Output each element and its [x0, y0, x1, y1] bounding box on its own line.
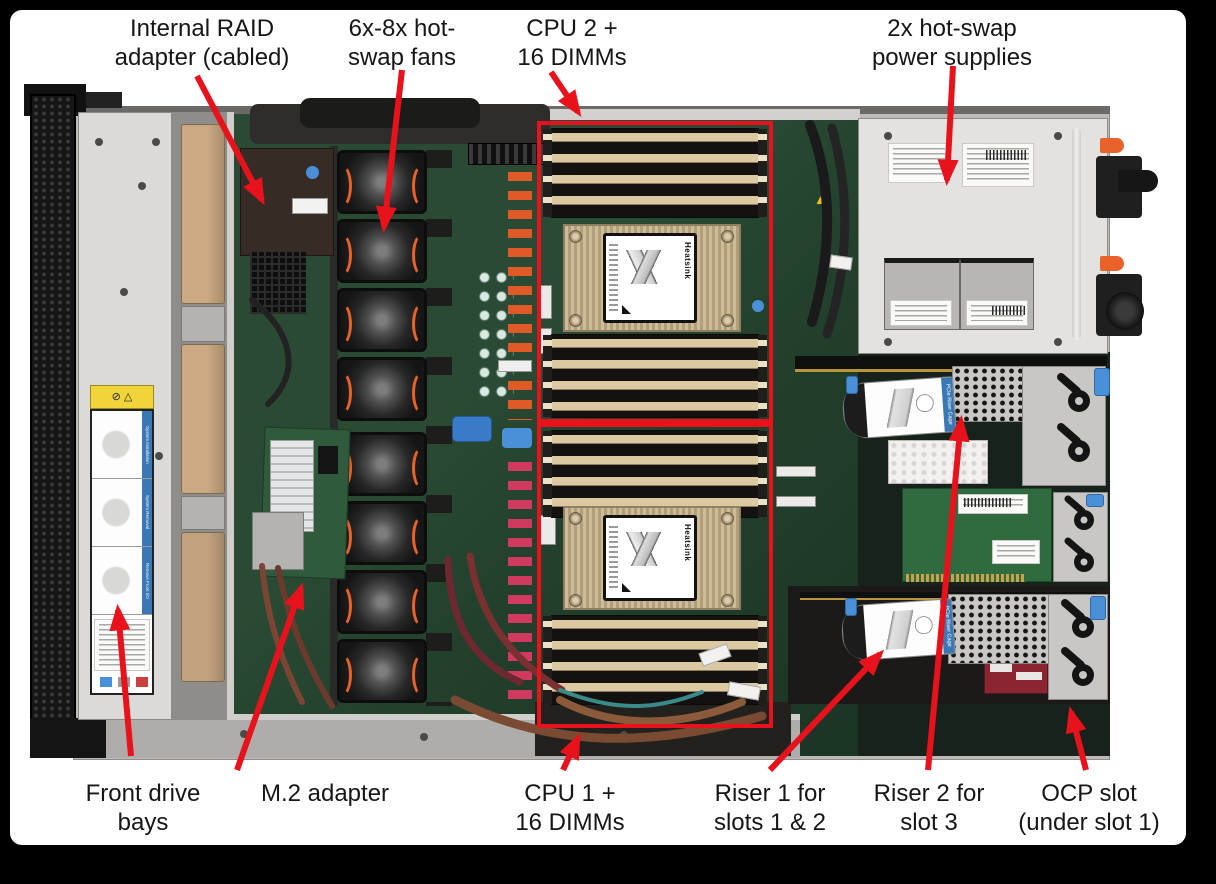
panel-screw: [138, 182, 146, 190]
service-card-panel: System Installation: [92, 411, 152, 479]
board-label-white: [498, 360, 532, 372]
riser2-instruction-card: PCIe Riser Cage: [841, 376, 957, 440]
rack-ear-bottom: [30, 718, 106, 758]
service-card-chip: [118, 677, 130, 687]
callout-front-drive-bays: Front drive bays: [86, 779, 201, 837]
blue-latch-small: [502, 428, 532, 448]
callout-line: Riser 2 for: [874, 779, 985, 808]
bracket-hook-cutouts: [1062, 495, 1102, 579]
riser1-blue-tab-left: [845, 598, 857, 616]
fan-module-2: [337, 219, 427, 283]
panel-screw: [152, 138, 160, 146]
riser-card-diagram: [870, 608, 940, 651]
cpu1-highlight-box: [537, 423, 773, 728]
psu-bay-screw: [1054, 132, 1062, 140]
psu-label-barcode: [992, 306, 1026, 315]
callout-line: slots 1 & 2: [714, 808, 826, 837]
callout-line: 2x hot-swap: [872, 14, 1032, 43]
riser1-blue-tab-right: [1090, 596, 1106, 620]
callout-line: swap fans: [348, 43, 456, 72]
callout-line: bays: [86, 808, 201, 837]
callout-cpu1: CPU 1 + 16 DIMMs: [515, 779, 624, 837]
fan-module-1: [337, 150, 427, 214]
front-bezel: [30, 94, 76, 732]
rack-latch-top: [86, 92, 122, 108]
psu2-release-tab: [1100, 256, 1124, 271]
fan-module-4: [337, 357, 427, 421]
pcie-card-barcode: [964, 498, 1012, 507]
warning-triangle-icon: △: [124, 391, 132, 403]
chassis-top-lip: [538, 109, 860, 120]
callout-psu: 2x hot-swap power supplies: [872, 14, 1032, 72]
cable-bundle-top-dark: [300, 98, 480, 128]
service-card-panel: Remove Front I/O: [92, 547, 152, 615]
riser-card-strip-label: PCIe Riser Cage: [940, 599, 955, 654]
drive-top-edge: [181, 532, 225, 682]
drive-top-edge: [181, 344, 225, 494]
board-connector-white: [776, 466, 816, 477]
callout-line: slot 3: [874, 808, 985, 837]
hook-cutout: [1061, 377, 1077, 391]
m2-chip: [318, 446, 338, 474]
service-strip-label: System Removal: [142, 479, 152, 546]
service-card-panel: System Removal: [92, 479, 152, 547]
callout-cpu2: CPU 2 + 16 DIMMs: [517, 14, 626, 72]
psu-label: [888, 143, 950, 183]
callout-line: Riser 1 for: [714, 779, 826, 808]
callout-line: OCP slot: [1018, 779, 1159, 808]
riser2-blue-tab-right: [1094, 368, 1110, 396]
riser1-vent-bracket: [948, 594, 1050, 664]
hook-cutout: [1065, 651, 1081, 665]
fan-module-6: [337, 501, 427, 565]
service-strip-label: System Installation: [142, 411, 152, 478]
callout-line: 16 DIMMs: [517, 43, 626, 72]
callout-line: M.2 adapter: [261, 779, 389, 808]
m2-shield: [252, 512, 304, 570]
fan-module-3: [337, 288, 427, 352]
power-connector-column-upper: [508, 172, 532, 420]
callout-line: 6x-8x hot-: [348, 14, 456, 43]
callout-riser2: Riser 2 for slot 3: [874, 779, 985, 837]
panel-screw: [120, 288, 128, 296]
service-strip-label: Remove Front I/O: [142, 547, 152, 614]
board-connector-white: [776, 496, 816, 507]
service-card-chip: [136, 677, 148, 687]
raid-adapter-label: [292, 198, 328, 214]
hook-cutout: [1068, 541, 1082, 553]
psu-label-barcode: [986, 150, 1028, 160]
fan-module-7: [337, 570, 427, 634]
panel-screw: [95, 138, 103, 146]
riser2-mid-blue-tab: [1086, 494, 1104, 507]
service-info-card: System Installation System Removal Remov…: [90, 409, 154, 695]
hook-cutout: [1068, 499, 1082, 511]
callout-line: power supplies: [872, 43, 1032, 72]
psu-cutout-label: [890, 300, 952, 326]
rail-screw: [240, 730, 248, 738]
callout-line: CPU 2 +: [517, 14, 626, 43]
hook-cutout: [1061, 427, 1077, 441]
drive-rail: [227, 112, 234, 720]
service-card-chip: [100, 677, 112, 687]
callout-ocp: OCP slot (under slot 1): [1018, 779, 1159, 837]
riser2-white-heatsink: [888, 440, 988, 484]
riser-card-diagram: [871, 386, 941, 429]
psu1-release-tab: [1100, 138, 1124, 153]
panel-screw: [155, 452, 163, 460]
psu-bay-seam: [1072, 128, 1081, 340]
callout-line: Front drive: [86, 779, 201, 808]
psu1-handle-bar: [1118, 170, 1158, 192]
psu-bay-screw: [884, 132, 892, 140]
psu2-handle-knob: [1106, 292, 1144, 330]
hook-cutout: [1065, 603, 1081, 617]
no-entry-icon: ⊘: [112, 391, 121, 403]
rail-screw: [620, 731, 628, 739]
callout-m2-adapter: M.2 adapter: [261, 779, 389, 808]
riser2-blue-tab: [846, 376, 858, 394]
raid-heatsink: [250, 252, 306, 314]
pcie-card-label: [992, 540, 1040, 564]
rail-screw: [420, 733, 428, 741]
drive-clip: [181, 496, 225, 530]
bracket-hook-cutouts: [1053, 371, 1097, 475]
callout-internal-raid: Internal RAID adapter (cabled): [115, 14, 290, 72]
callout-line: CPU 1 +: [515, 779, 624, 808]
service-card-text-panel: [94, 619, 150, 671]
drive-top-edge: [181, 124, 225, 304]
callout-line: 16 DIMMs: [515, 808, 624, 837]
fan-module-8: [337, 639, 427, 703]
fan-module-5: [337, 432, 427, 496]
cpu2-highlight-box: [537, 121, 773, 423]
warning-label: ⊘ △: [90, 385, 154, 409]
board-warning-icon: ▲: [814, 192, 832, 208]
callout-line: adapter (cabled): [115, 43, 290, 72]
riser1-instruction-card: PCIe Riser Cage: [840, 598, 956, 662]
annotated-server-diagram: { "colors": { "annotation_red": "#e8121d…: [0, 0, 1216, 884]
ocp-card-label: [1016, 672, 1042, 680]
callout-fans: 6x-8x hot- swap fans: [348, 14, 456, 72]
psu-bay-screw: [1054, 338, 1062, 346]
pcie-card-contacts: [906, 574, 1026, 582]
board-standoff-blue: [306, 166, 319, 179]
power-connector-column-lower: [508, 462, 532, 702]
ocp-card-label: [990, 664, 1012, 672]
blue-latch: [452, 416, 492, 442]
callout-line: Internal RAID: [115, 14, 290, 43]
callout-riser1: Riser 1 for slots 1 & 2: [714, 779, 826, 837]
riser-card-strip-label: PCIe Riser Cage: [941, 377, 956, 432]
callout-line: (under slot 1): [1018, 808, 1159, 837]
psu-bay-screw: [884, 338, 892, 346]
fan-connector-strip: [426, 150, 452, 706]
drive-clip: [181, 306, 225, 342]
